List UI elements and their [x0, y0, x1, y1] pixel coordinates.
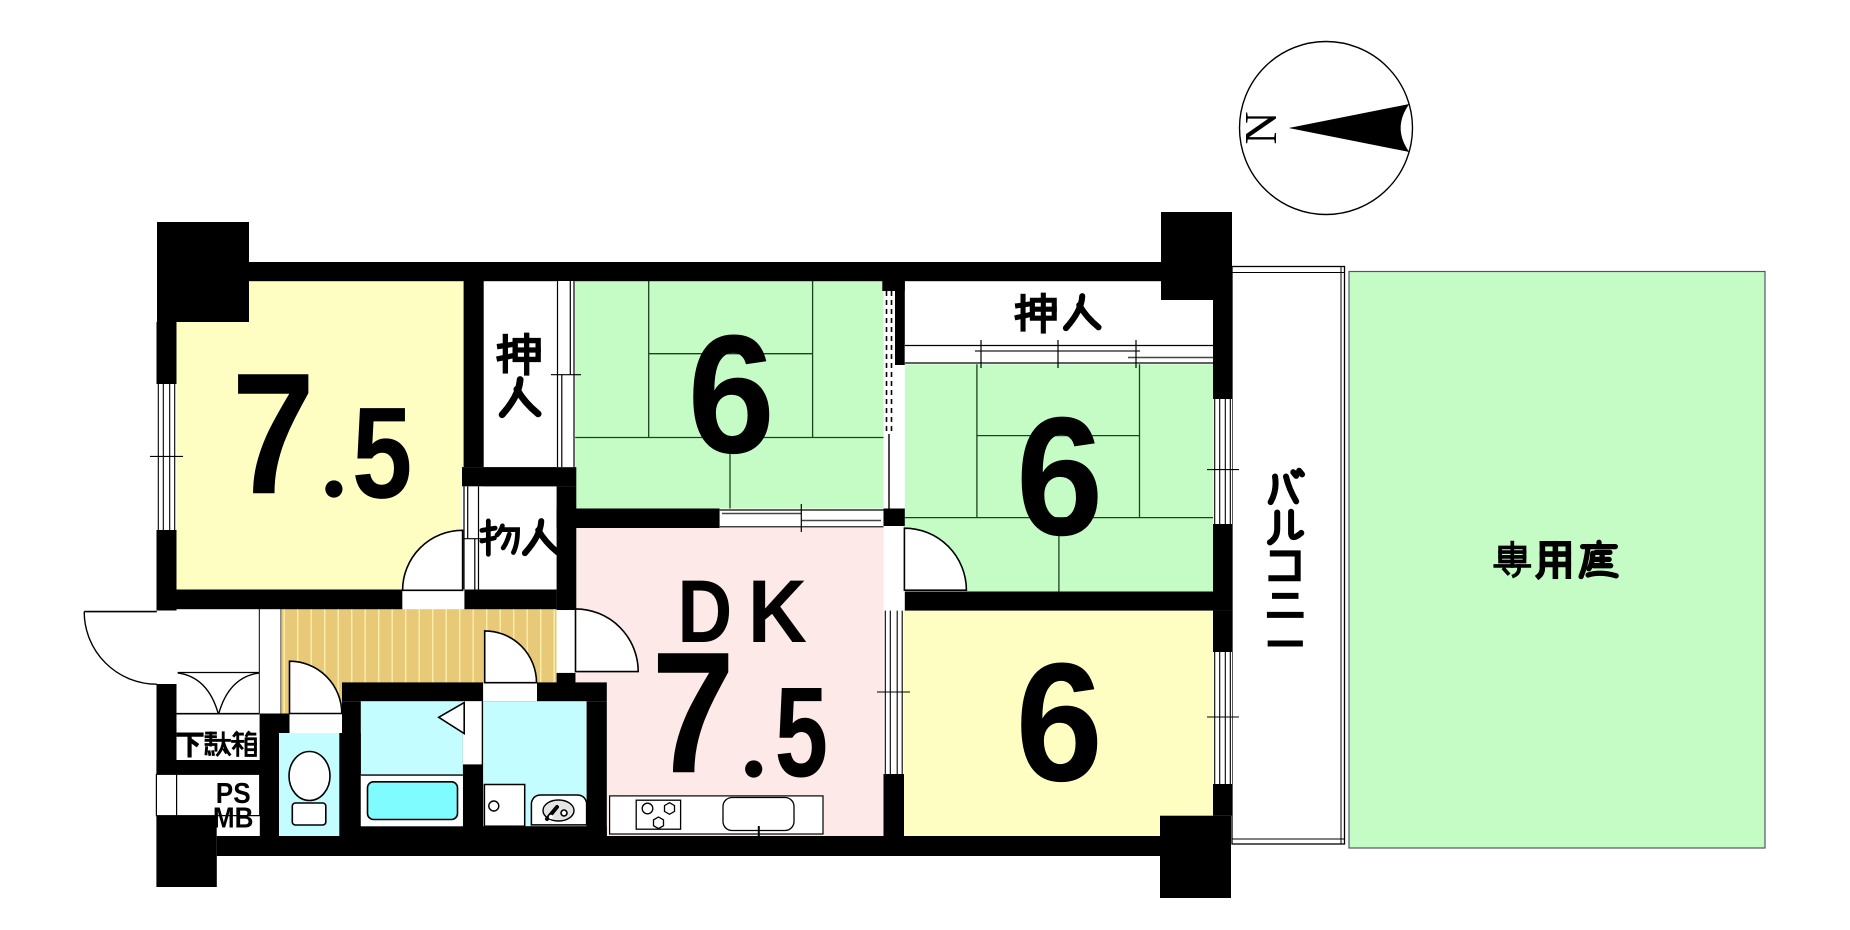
svg-text:N: N [1235, 111, 1286, 144]
svg-text:6: 6 [687, 299, 774, 489]
svg-text:6: 6 [1015, 627, 1102, 817]
svg-text:7: 7 [232, 338, 315, 530]
svg-text:7: 7 [652, 617, 735, 809]
svg-text:MB: MB [213, 801, 254, 834]
svg-text:6: 6 [1016, 381, 1103, 571]
svg-text:5: 5 [775, 661, 828, 804]
svg-text:K: K [748, 563, 807, 662]
svg-text:5: 5 [352, 382, 412, 526]
